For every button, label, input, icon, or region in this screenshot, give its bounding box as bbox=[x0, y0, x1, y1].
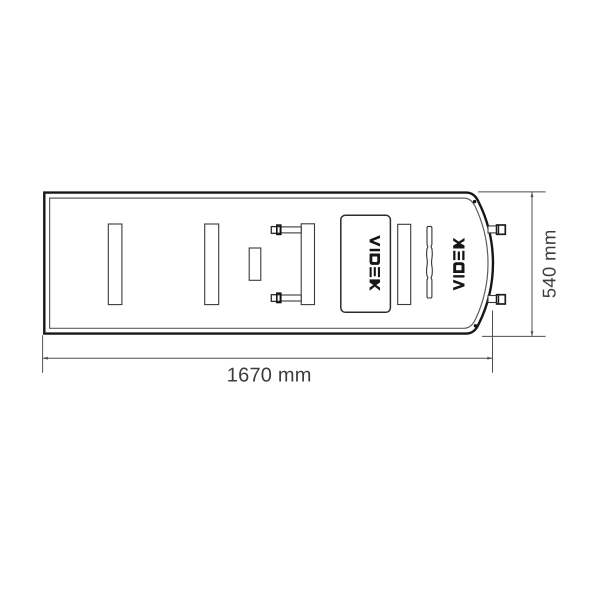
svg-text:540 mm: 540 mm bbox=[539, 229, 560, 298]
svg-text:1670 mm: 1670 mm bbox=[227, 364, 312, 386]
